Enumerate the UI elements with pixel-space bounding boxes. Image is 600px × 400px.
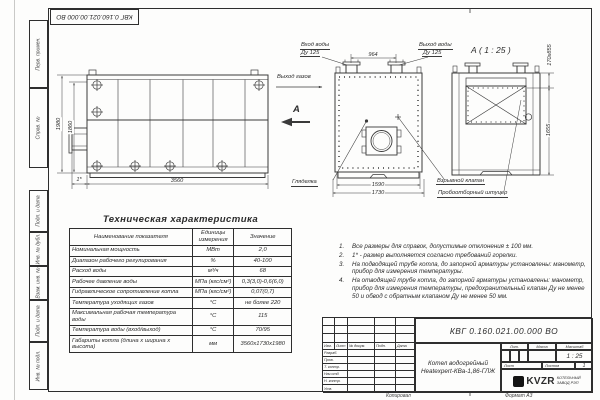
front-view-dims [333, 54, 424, 197]
note-text: Все размеры для справок, допустимые откл… [352, 243, 587, 251]
cell-unit: °С [192, 298, 234, 308]
tb-cell [323, 318, 335, 326]
table-row: Гидравлическое сопротивление котлаМПа (к… [70, 287, 292, 297]
tb-row-developed: Разраб. [323, 350, 348, 357]
tb-sheets-value: 1 [575, 362, 593, 369]
tb-sheet-label: Лист [501, 362, 542, 369]
cell-name: Диапазон рабочего регулирования [70, 256, 193, 266]
tb-cell [396, 371, 415, 378]
dim-front-inner: 1590 [371, 182, 385, 188]
tb-header-date: Дата [396, 343, 415, 350]
tb-cell [375, 357, 396, 364]
note-number: 3. [339, 261, 352, 277]
label-gas-outlet: Выход газов [276, 74, 312, 81]
tb-row-dept-head: Нач.отд. [323, 371, 348, 378]
cell-unit: МПа (кгс/см²) [192, 287, 234, 297]
tb-mass-cell [528, 350, 556, 362]
cell-value: 68 [234, 266, 292, 276]
cell-name: Номинальная мощность [70, 246, 193, 256]
dim-side-length: 3560 [171, 178, 183, 184]
note-item: 1.Все размеры для справок, допустимые от… [339, 243, 587, 251]
tb-cell [396, 326, 415, 334]
burner-flange [362, 127, 401, 155]
dim-front-top: 964 [368, 52, 377, 58]
tb-cell [348, 326, 375, 334]
cell-unit: м³/ч [192, 266, 234, 276]
col-header-units: Единицы измерения [192, 229, 234, 246]
tb-cell [375, 334, 396, 343]
tb-cell [323, 326, 335, 334]
tb-scale-value: 1 : 25 [556, 350, 593, 362]
table-row: Температура уходящих газов°Сне более 220 [70, 298, 292, 308]
leader-lines [322, 57, 444, 180]
spec-table: Наименование показателя Единицы измерени… [69, 228, 292, 353]
note-number: 4. [339, 277, 352, 300]
cell-unit: МВт [192, 246, 234, 256]
label-explosion-valve: Взрывной клапан [436, 178, 485, 186]
table-row: Максимальная рабочая температура воды°С1… [70, 308, 292, 325]
tb-lit-cell [510, 350, 519, 362]
kvzr-logo-icon [513, 376, 524, 387]
view-a-arrow [281, 118, 310, 126]
cell-value: 70/95 [234, 325, 292, 335]
table-row: Расход водым³/ч68 [70, 266, 292, 276]
label-water-inlet-dn: Ду 125 [300, 50, 320, 58]
tb-cell [375, 364, 396, 371]
note-item: 4.На отводящей трубе котла, до запорной … [339, 277, 587, 300]
note-text: 1* - размер выполняется согласно требова… [352, 252, 587, 260]
company-name-line2: ЗАВОД РЭП [557, 381, 581, 386]
note-number: 2. [339, 252, 352, 260]
drawing-sheet: Перв. примен. Справ. № Подп. и дата Инв.… [0, 0, 600, 400]
cell-unit: мм [192, 336, 234, 353]
note-item: 3.На подводящей трубе котла, до запорной… [339, 261, 587, 277]
tb-cell [335, 318, 348, 326]
tb-cell [375, 385, 396, 392]
tb-company-cell: KVZR КОТЕЛЬНЫЙ ЗАВОД РЭП [501, 369, 593, 393]
cell-value: 0,07(0,7) [234, 287, 292, 297]
title-block-left-grid: Изм. Лист № докум. Подп. Дата Разраб. Пр… [323, 318, 415, 393]
footer-format: Формат А3 [505, 393, 532, 399]
tb-lit-cell [501, 350, 510, 362]
tb-cell [375, 371, 396, 378]
footer-copied-by: Копировал [386, 393, 411, 399]
tb-cell [375, 318, 396, 326]
tb-scale-header: Масштаб [556, 343, 593, 350]
label-sampling-fitting: Пробоотборный штуцер [437, 190, 508, 198]
cell-name: Габариты котла (длина х ширина х высота) [70, 336, 193, 353]
tb-cell [396, 378, 415, 385]
cell-value: 0,3(3,0)-0,6(6,0) [234, 277, 292, 287]
cell-value: 115 [234, 308, 292, 325]
tb-cell [348, 385, 375, 392]
tb-mass-header: Масса [528, 343, 556, 350]
tb-cell [348, 334, 375, 343]
tb-product-name-line1: Котел водогрейный [428, 360, 488, 369]
col-header-value: Значение [234, 229, 292, 246]
spec-section: Техническая характеристика Наименование … [69, 214, 292, 353]
dim-side-height-inner: 1860 [68, 120, 74, 134]
company-name: КОТЕЛЬНЫЙ ЗАВОД РЭП [557, 376, 581, 385]
cell-name: Гидравлическое сопротивление котла [70, 287, 193, 297]
cell-unit: МПа (кгс/см²) [192, 277, 234, 287]
cell-unit: °С [192, 325, 234, 335]
table-row: Диапазон рабочего регулирования%40-100 [70, 256, 292, 266]
tb-cell [396, 364, 415, 371]
tb-header-sign: Подп. [375, 343, 396, 350]
col-header-name: Наименование показателя [70, 229, 193, 246]
cell-unit: % [192, 256, 234, 266]
tb-cell [375, 326, 396, 334]
tb-lit-cell [519, 350, 528, 362]
cell-name: Расход воды [70, 266, 193, 276]
detail-view-a [452, 63, 554, 191]
side-view [57, 70, 268, 189]
cell-value: 40-100 [234, 256, 292, 266]
tb-header-docnum: № докум. [348, 343, 375, 350]
label-water-outlet-dn: Ду 125 [422, 50, 442, 58]
tb-header-list: Лист [335, 343, 348, 350]
dim-detail-height: 1655 [546, 123, 552, 137]
notes-list: 1.Все размеры для справок, допустимые от… [339, 243, 587, 301]
note-number: 1. [339, 243, 352, 251]
tb-header-izm: Изм. [323, 343, 335, 350]
cell-value: 3560х1730х1980 [234, 336, 292, 353]
tb-cell [348, 378, 375, 385]
dim-side-height-outer: 1980 [56, 117, 62, 131]
side-view-fittings [91, 79, 265, 172]
label-view-letter-a: А [293, 104, 300, 115]
tb-doc-number: КВГ 0.160.021.00.000 ВО [415, 318, 593, 343]
spec-title: Техническая характеристика [69, 214, 292, 225]
table-row: Габариты котла (длина х ширина х высота)… [70, 336, 292, 353]
tb-product-name: Котел водогрейный Heatexpert-КВа-1,86-ГЛ… [415, 343, 501, 393]
tb-cell [348, 350, 375, 357]
tb-row-tcontrol: Т. контр. [323, 364, 348, 371]
tb-cell [348, 371, 375, 378]
table-row: Номинальная мощностьМВт2,0 [70, 246, 292, 256]
tb-cell [348, 364, 375, 371]
cell-unit: °С [192, 308, 234, 325]
tb-cell [396, 318, 415, 326]
tb-cell [396, 357, 415, 364]
table-row: Температура воды (вход/выход)°С70/95 [70, 325, 292, 335]
tb-cell [335, 334, 348, 343]
tb-cell [375, 350, 396, 357]
tb-cell [396, 334, 415, 343]
title-block: Изм. Лист № докум. Подп. Дата Разраб. Пр… [322, 317, 592, 392]
tb-row-approved: Утв. [323, 385, 348, 392]
cell-name: Рабочее давление воды [70, 277, 193, 287]
detail-view-title: А ( 1 : 25 ) [471, 45, 511, 55]
side-view-dims [57, 75, 268, 189]
cell-value: 2,0 [234, 246, 292, 256]
tb-row-checked: Пров. [323, 357, 348, 364]
note-item: 2.1* - размер выполняется согласно требо… [339, 252, 587, 260]
cell-value: не более 220 [234, 298, 292, 308]
cell-name: Максимальная рабочая температура воды [70, 308, 193, 325]
dim-side-burner: 1* [76, 177, 81, 183]
cell-name: Температура воды (вход/выход) [70, 325, 193, 335]
tb-row-ncontrol: Н. контр. [323, 378, 348, 385]
note-text: На отводящей трубе котла, до запорной ар… [352, 277, 587, 300]
tb-cell [348, 357, 375, 364]
tb-product-name-line2: Heatexpert-КВа-1,86-ГЛЖ [421, 368, 495, 377]
tb-cell [396, 385, 415, 392]
tb-cell [323, 334, 335, 343]
tb-cell [335, 326, 348, 334]
tb-sheets-label: Листов [542, 362, 575, 369]
tb-cell [396, 350, 415, 357]
tb-lit-header: Лит. [501, 343, 528, 350]
tb-cell [348, 318, 375, 326]
kvzr-logo-text: KVZR [526, 376, 554, 387]
dim-front-outer: 1730 [371, 190, 385, 196]
dim-detail-top: 170х855 [547, 43, 553, 66]
note-text: На подводящей трубе котла, до запорной а… [352, 261, 587, 277]
cell-name: Температура уходящих газов [70, 298, 193, 308]
table-row: Рабочее давление водыМПа (кгс/см²)0,3(3,… [70, 277, 292, 287]
tb-cell [375, 378, 396, 385]
label-sight-glass: Гляделка [291, 179, 318, 187]
table-header-row: Наименование показателя Единицы измерени… [70, 229, 292, 246]
